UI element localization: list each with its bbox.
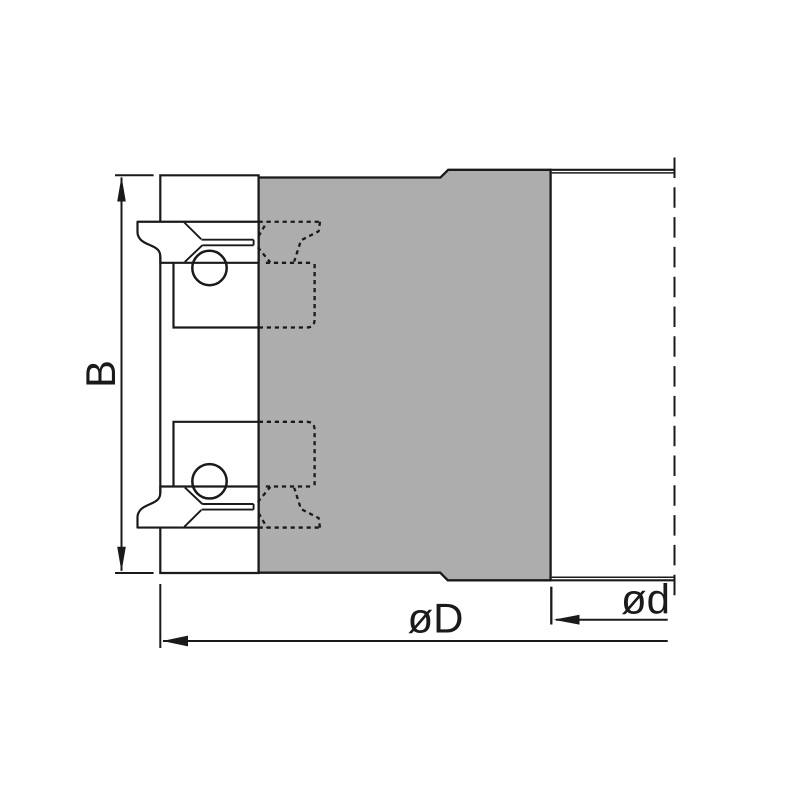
svg-text:ød: ød — [621, 576, 670, 623]
svg-text:B: B — [77, 360, 124, 388]
svg-text:øD: øD — [408, 594, 464, 641]
